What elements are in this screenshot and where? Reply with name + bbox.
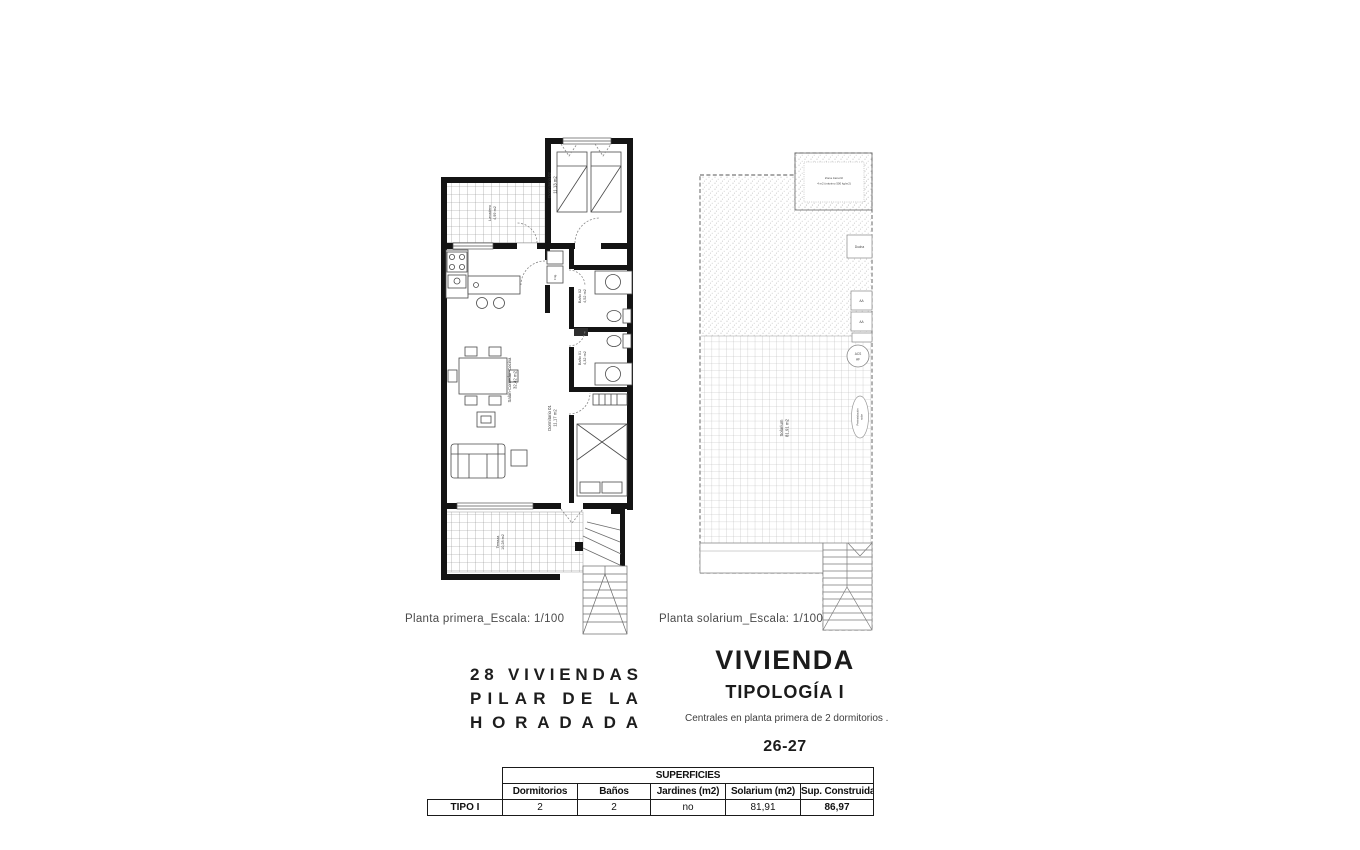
jacuzzi-spec: 4 m2 (máximo 500 kg/m2) (817, 182, 851, 186)
col-dormitorios: Dormitorios (503, 784, 578, 800)
room-area-dormitorio-01: 11,17 m2 (553, 409, 558, 427)
value-sup-construida: 86,97 (801, 800, 874, 816)
solarium-plan: Zona Jacuzzi 4 m2 (máximo 500 kg/m2) Duc… (690, 140, 885, 640)
table-header-row: Dormitorios Baños Jardines (m2) Solarium… (428, 784, 874, 800)
project-title-line2: PILAR DE LA (470, 687, 638, 711)
solarium-caption: Planta solarium_Escala: 1/100 (659, 613, 823, 625)
jacuzzi-label: Zona Jacuzzi (825, 176, 844, 180)
room-label-terraza: Terraza (496, 535, 500, 549)
surfaces-table: SUPERFICIES Dormitorios Baños Jardines (… (427, 767, 874, 816)
value-banos: 2 (578, 800, 651, 816)
col-sup-construida: Sup. Construida (801, 784, 874, 800)
first-floor-plan: Dormitorio 02 11,13 m2 Lavadero 4,99 m2 … (435, 130, 635, 640)
room-area-dormitorio-02: 11,13 m2 (553, 176, 558, 194)
acs-label: ACS (855, 352, 862, 356)
room-area-bano-01: 4,32 m2 (583, 351, 587, 365)
table-value-row: TIPO I 2 2 no 81,91 86,97 (428, 800, 874, 816)
table-title: SUPERFICIES (503, 768, 874, 784)
room-area-salon: 32,42 m2 (513, 370, 518, 389)
typology-block: VIVIENDA TIPOLOGÍA I Centrales en planta… (685, 645, 885, 756)
project-title: 28 VIVIENDAS PILAR DE LA HORADADA (470, 663, 638, 735)
col-banos: Baños (578, 784, 651, 800)
room-label-dormitorio-01: Dormitorio 01 (547, 404, 552, 430)
value-jardines: no (651, 800, 726, 816)
room-label-salon: Salón-Comedor-Cocina (507, 357, 512, 403)
table-title-row: SUPERFICIES (428, 768, 874, 784)
project-title-line3: HORADADA (470, 711, 638, 735)
solarium-textures (701, 176, 871, 543)
room-label-bano-01: Baño 01 (578, 351, 582, 365)
value-dormitorios: 2 (503, 800, 578, 816)
room-label-solarium: Solarium (779, 419, 784, 436)
typology-subtitle: TIPOLOGÍA I (685, 682, 885, 703)
table-blank-cell (428, 784, 503, 800)
unit-numbers: 26-27 (685, 738, 885, 756)
room-area-solarium: 81,91 m2 (785, 418, 790, 437)
room-area-terraza: 10,28 m2 (501, 534, 505, 550)
project-title-line1: 28 VIVIENDAS (470, 663, 638, 687)
room-label-bano-02: Baño 02 (578, 289, 582, 303)
af-label: AF (856, 358, 860, 362)
room-label-dormitorio-02: Dormitorio 02 (547, 171, 552, 197)
solar-preinstall-label-2: solar (860, 414, 864, 420)
plan-sheet: Dormitorio 02 11,13 m2 Lavadero 4,99 m2 … (0, 0, 1360, 850)
room-area-bano-02: 4,52 m2 (583, 289, 587, 303)
col-solarium: Solarium (m2) (726, 784, 801, 800)
label-fridge: Frig. (553, 274, 557, 280)
typology-description: Centrales en planta primera de 2 dormito… (685, 713, 885, 724)
dwelling-title: VIVIENDA (685, 645, 885, 676)
first-floor-caption: Planta primera_Escala: 1/100 (405, 613, 564, 625)
jacuzzi-zone: Zona Jacuzzi 4 m2 (máximo 500 kg/m2) (795, 153, 872, 210)
shower-label: Ducha (855, 245, 864, 249)
room-label-lavadero: Lavadero (488, 205, 492, 221)
value-solarium: 81,91 (726, 800, 801, 816)
col-jardines: Jardines (m2) (651, 784, 726, 800)
table-blank-cell (428, 768, 503, 784)
row-label-tipo-i: TIPO I (428, 800, 503, 816)
room-area-lavadero: 4,99 m2 (493, 206, 497, 220)
tiled-terrace (446, 512, 583, 572)
solar-preinstall-label-1: Preinstalación (856, 408, 860, 425)
